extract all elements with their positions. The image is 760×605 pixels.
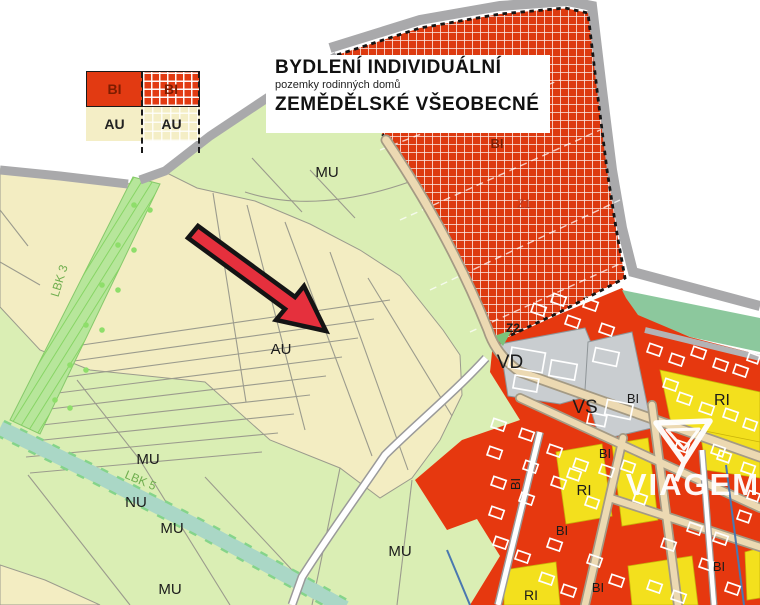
map-label-bi: BI — [592, 580, 604, 595]
map-label-mu: MU — [160, 520, 183, 537]
legend-label-bi-hatched: BI — [164, 81, 178, 97]
map-label-mu: MU — [315, 164, 338, 181]
map-label-ri: RI — [577, 482, 592, 499]
legend-title-box: BYDLENÍ INDIVIDUÁLNÍ pozemky rodinných d… — [266, 55, 550, 133]
map-label-ri: RI — [714, 392, 730, 409]
map-label-vd: VD — [497, 352, 523, 373]
map-label-z1: Z1 — [517, 197, 531, 211]
map-label-bi: BI — [556, 523, 568, 538]
legend-cell-au: AU — [86, 107, 143, 141]
map-label-nu: NU — [125, 494, 147, 511]
map-label-bi: BI — [713, 559, 725, 574]
map-label-au: AU — [271, 341, 292, 358]
legend-cell-bi-hatched: BI — [143, 72, 199, 106]
map-label-mu: MU — [136, 451, 159, 468]
legend-label-au: AU — [104, 116, 124, 132]
zone-type-subtitle-bi: pozemky rodinných domů — [275, 79, 550, 91]
legend-cell-bi-solid: BI — [87, 72, 143, 106]
zone-type-title-au: ZEMĚDĚLSKÉ VŠEOBECNÉ — [275, 94, 550, 116]
legend-label-au-dashed: AU — [161, 116, 181, 132]
zoning-map-screenshot: MUAUMUNUMUMUMUBIZ1Z2VDVSBIRIBIRIBIBIBIRI… — [0, 0, 760, 605]
map-label-mu: MU — [158, 581, 181, 598]
map-label-bi: BI — [508, 478, 523, 490]
legend-cell-au-dashed: AU — [143, 107, 200, 141]
legend-dashed-divider-right — [198, 72, 200, 153]
legend-swatches: BI BI AU AU — [86, 71, 200, 141]
map-label-ri: RI — [524, 587, 538, 603]
legend-dashed-divider-left — [141, 72, 143, 153]
map-label-vs: VS — [572, 397, 597, 418]
map-label-z2: Z2 — [506, 321, 520, 335]
map-label-bi: BI — [627, 391, 639, 406]
map-label-bi: BI — [491, 136, 504, 151]
map-label-bi: BI — [599, 446, 611, 461]
viagem-text: VIAGEM — [626, 467, 760, 502]
map-label-mu: MU — [388, 543, 411, 560]
legend-label-bi-solid: BI — [108, 81, 122, 97]
zone-type-title-bi: BYDLENÍ INDIVIDUÁLNÍ — [275, 57, 550, 79]
